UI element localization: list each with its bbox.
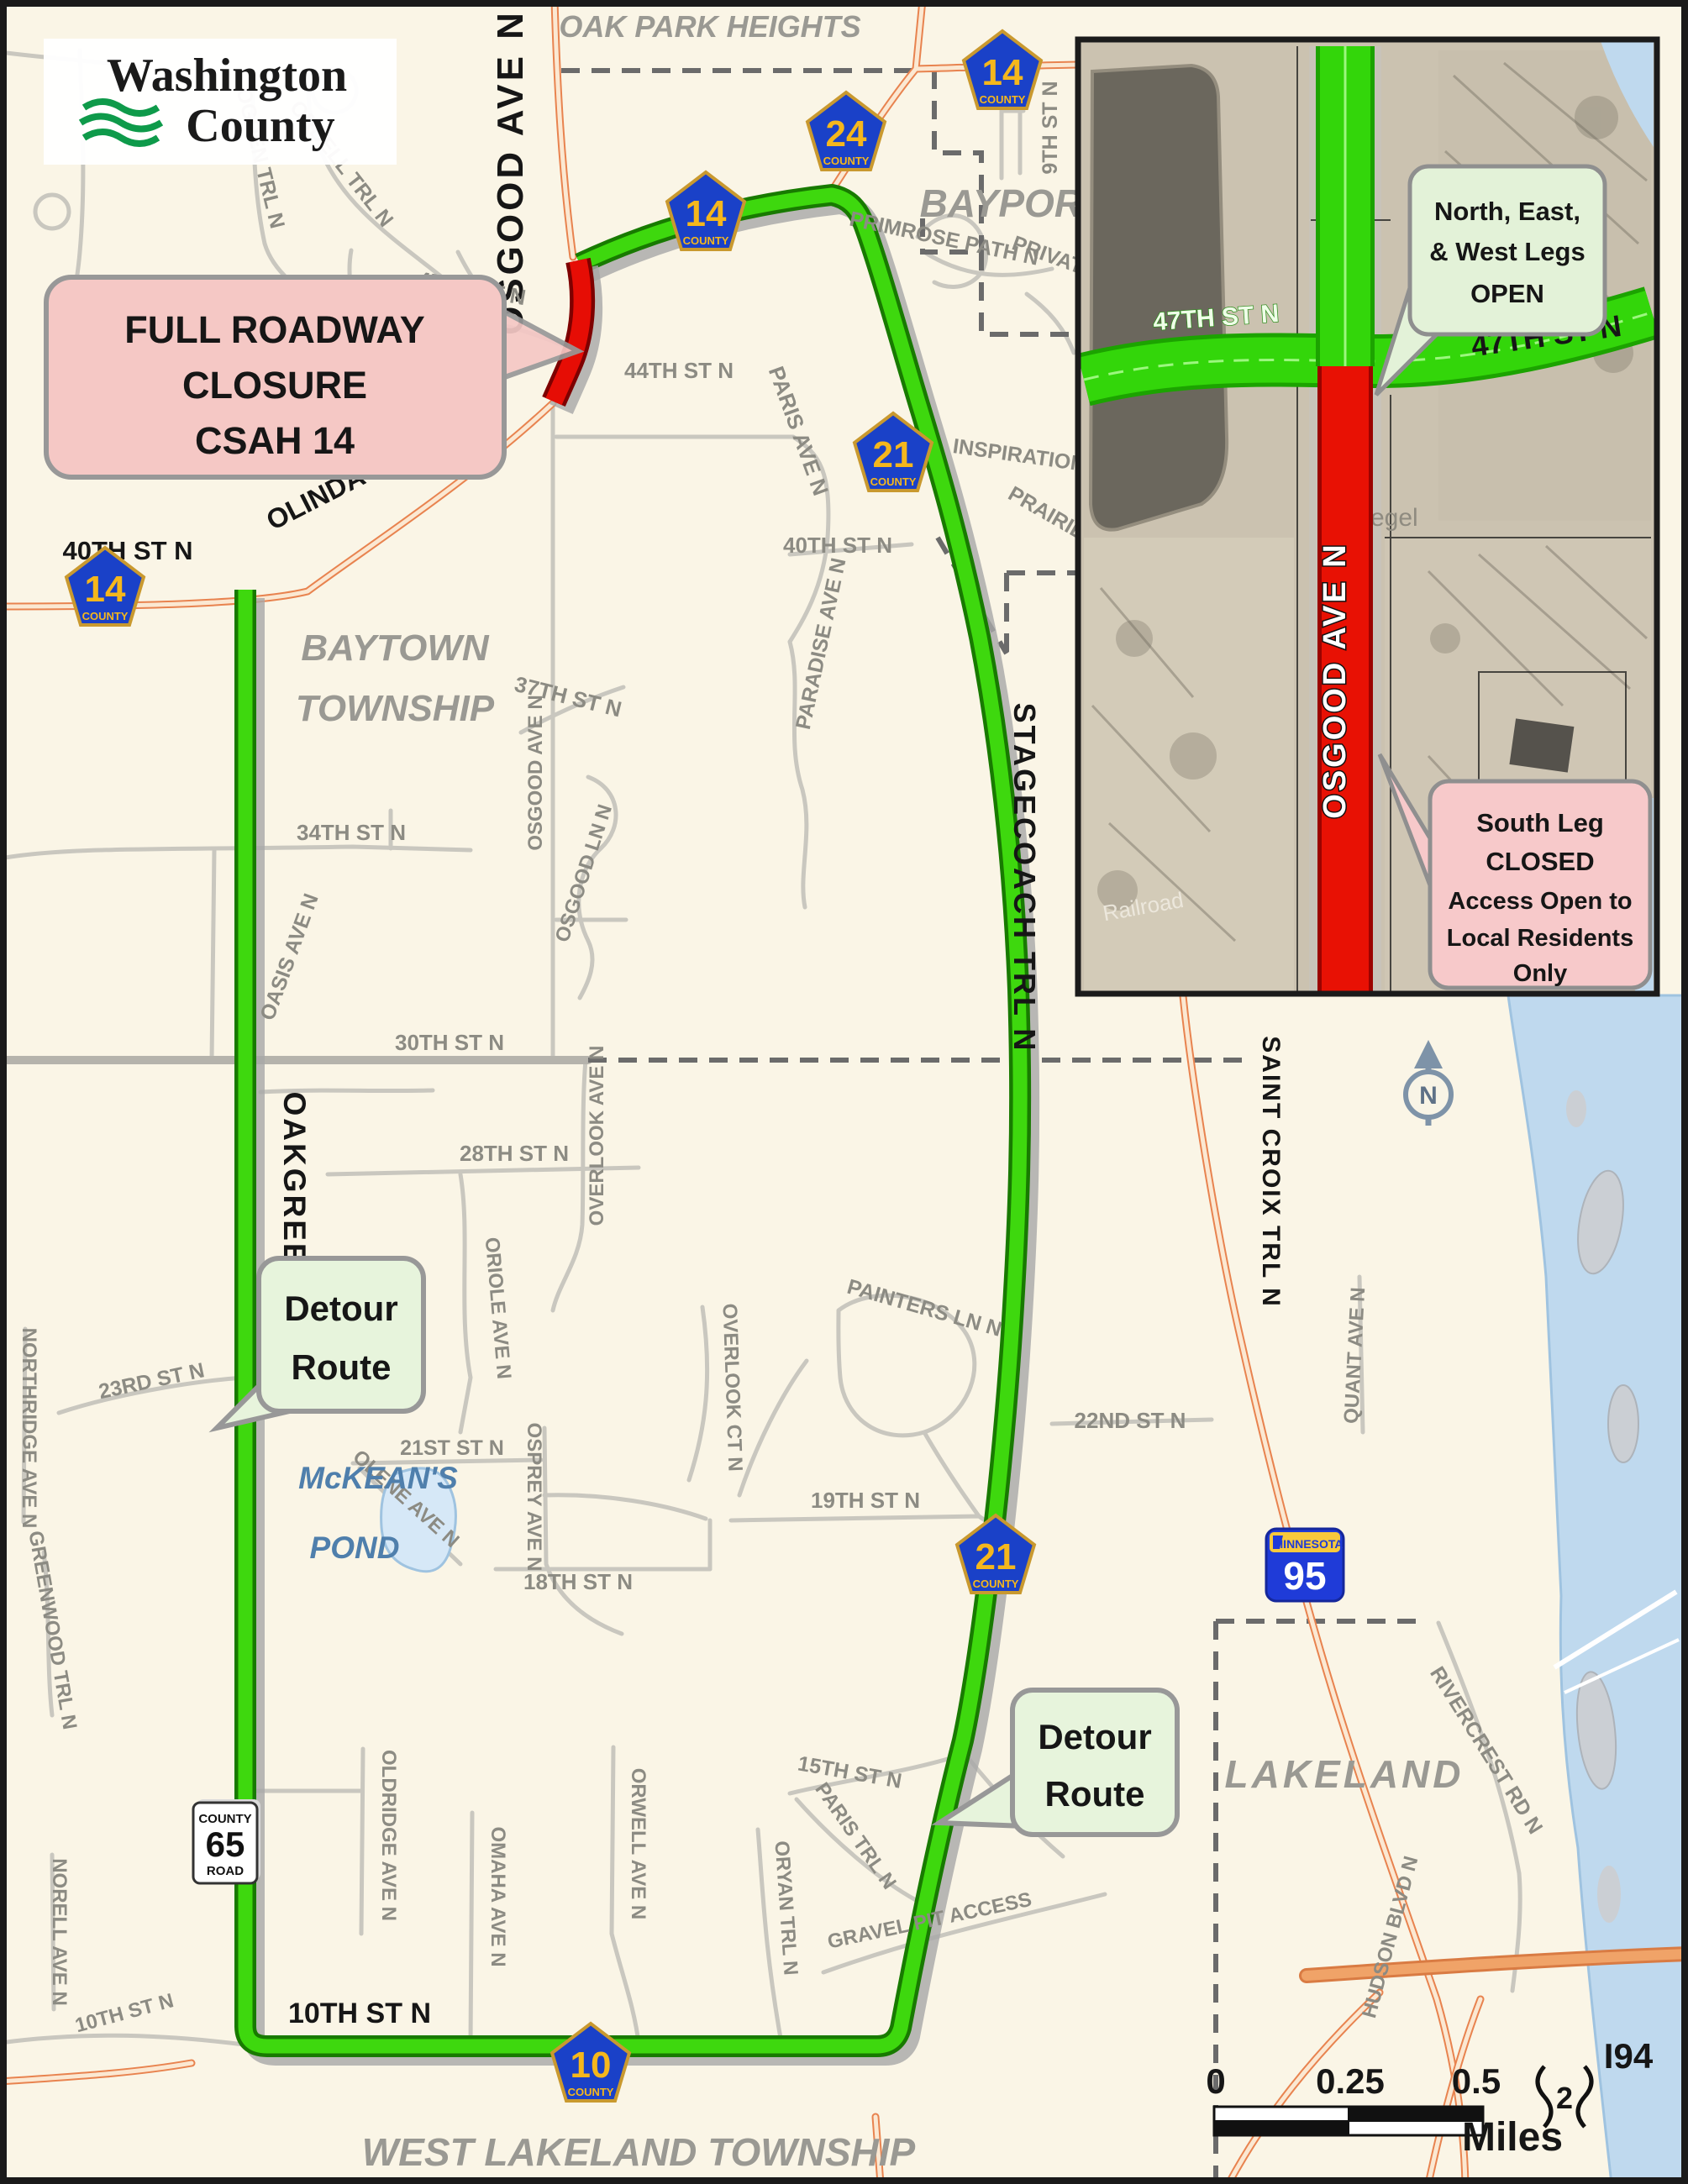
open-line2: & West Legs [1429, 237, 1585, 266]
detour-east-line1: Detour [1038, 1717, 1151, 1756]
closure-line1: FULL ROADWAY [124, 308, 425, 351]
shield-number: 14 [85, 569, 126, 610]
inset-aerial: Siegel 47TH ST N 47TH ST N OSGOOD AVE N … [1078, 39, 1657, 994]
label-18th: 18TH ST N [523, 1569, 633, 1594]
label-44th: 44TH ST N [624, 358, 734, 383]
label-stagecoach: STAGECOACH TRL N [1007, 703, 1042, 1053]
label-30th: 30TH ST N [395, 1030, 504, 1055]
closed-line5: Only [1513, 960, 1567, 987]
closure-line2: CLOSURE [182, 364, 367, 407]
detour-east-line2: Route [1045, 1774, 1145, 1814]
closed-line3: Access Open to [1448, 888, 1632, 915]
c65-bottom: ROAD [207, 1864, 244, 1878]
label-overlook-ave: OVERLOOK AVE N [586, 1046, 608, 1226]
label-mckeans: McKEAN'S [298, 1461, 458, 1495]
label-osprey: OSPREY AVE N [523, 1423, 545, 1572]
mn95-number: 95 [1283, 1554, 1326, 1598]
shield-number: 24 [826, 113, 867, 155]
label-10th: 10TH ST N [288, 1998, 431, 2029]
north-letter: N [1419, 1082, 1438, 1110]
inset-osgood-label: OSGOOD AVE N [1317, 542, 1353, 818]
shield-caption: COUNTY [823, 155, 870, 167]
label-9th: 9TH ST N [1039, 81, 1062, 174]
label-oldridge: OLDRIDGE AVE N [377, 1750, 400, 1921]
shield-caption: COUNTY [980, 93, 1026, 106]
ramp-number: 2 [1556, 2081, 1573, 2115]
shield-county-65: COUNTY 65 ROAD [193, 1799, 260, 1883]
shield-number: 10 [571, 2045, 612, 2086]
shield-number: 21 [975, 1536, 1017, 1578]
label-orwell: ORWELL AVE N [627, 1768, 649, 1919]
label-northridge: NORTHRIDGE AVE N [18, 1328, 40, 1529]
closed-line4: Local Residents [1447, 925, 1633, 952]
mn95-state: MINNESOTA [1274, 1537, 1344, 1551]
label-21st: 21ST ST N [400, 1436, 504, 1460]
label-22nd: 22ND ST N [1075, 1408, 1186, 1433]
shield-number: 21 [873, 434, 914, 475]
detour-west-line2: Route [292, 1347, 392, 1387]
place-lakeland: LAKELAND [1225, 1752, 1465, 1796]
label-pond: POND [310, 1530, 400, 1565]
label-28th: 28TH ST N [460, 1141, 569, 1166]
place-oak-park-heights: OAK PARK HEIGHTS [559, 9, 860, 44]
detour-west-line1: Detour [284, 1289, 397, 1328]
closure-callout: FULL ROADWAY CLOSURE CSAH 14 [46, 277, 578, 477]
place-baytown-1: BAYTOWN [301, 627, 489, 669]
scale-half: 0.5 [1452, 2061, 1501, 2101]
place-baytown-2: TOWNSHIP [296, 688, 495, 729]
scale-zero: 0 [1206, 2061, 1225, 2101]
washington-county-logo: Washington County [44, 39, 397, 165]
c65-number: 65 [206, 1824, 245, 1864]
label-norell: NORELL AVE N [48, 1858, 71, 2006]
shield-caption: COUNTY [973, 1578, 1019, 1590]
shield-caption: COUNTY [568, 2086, 614, 2098]
logo-line1: Washington [107, 50, 347, 102]
shield-number: 14 [686, 193, 727, 234]
shield-caption: COUNTY [870, 475, 917, 488]
scale-unit: Miles [1462, 2115, 1563, 2160]
label-40th-w: 40TH ST N [62, 536, 192, 565]
label-40th-e: 40TH ST N [783, 533, 892, 558]
shield-number: 14 [982, 52, 1023, 93]
logo-line2: County [186, 100, 334, 152]
open-line1: North, East, [1434, 197, 1580, 226]
label-34th: 34TH ST N [297, 820, 406, 845]
label-19th: 19TH ST N [811, 1488, 920, 1513]
scale-quarter: 0.25 [1316, 2061, 1385, 2101]
label-saint-croix: SAINT CROIX TRL N [1257, 1036, 1285, 1307]
open-line3: OPEN [1470, 279, 1544, 308]
inset-building-1 [1509, 718, 1574, 772]
shield-caption: COUNTY [683, 234, 729, 247]
place-west-lakeland: WEST LAKELAND TOWNSHIP [362, 2130, 916, 2174]
closed-line1: South Leg [1476, 808, 1604, 837]
inset-pond [1091, 66, 1227, 530]
shield-caption: COUNTY [82, 610, 129, 622]
map-canvas: OAK PARK HEIGHTS BAYPORT BAYTOWN TOWNSHI… [0, 0, 1688, 2184]
label-i94: I94 [1604, 2036, 1654, 2076]
shield-mn-95: MINNESOTA 95 [1266, 1529, 1344, 1601]
label-omaha: OMAHA AVE N [486, 1826, 509, 1966]
label-osgood-mid: OSGOOD AVE N [524, 695, 547, 850]
closure-line3: CSAH 14 [195, 419, 355, 462]
closed-line2: CLOSED [1486, 847, 1594, 876]
